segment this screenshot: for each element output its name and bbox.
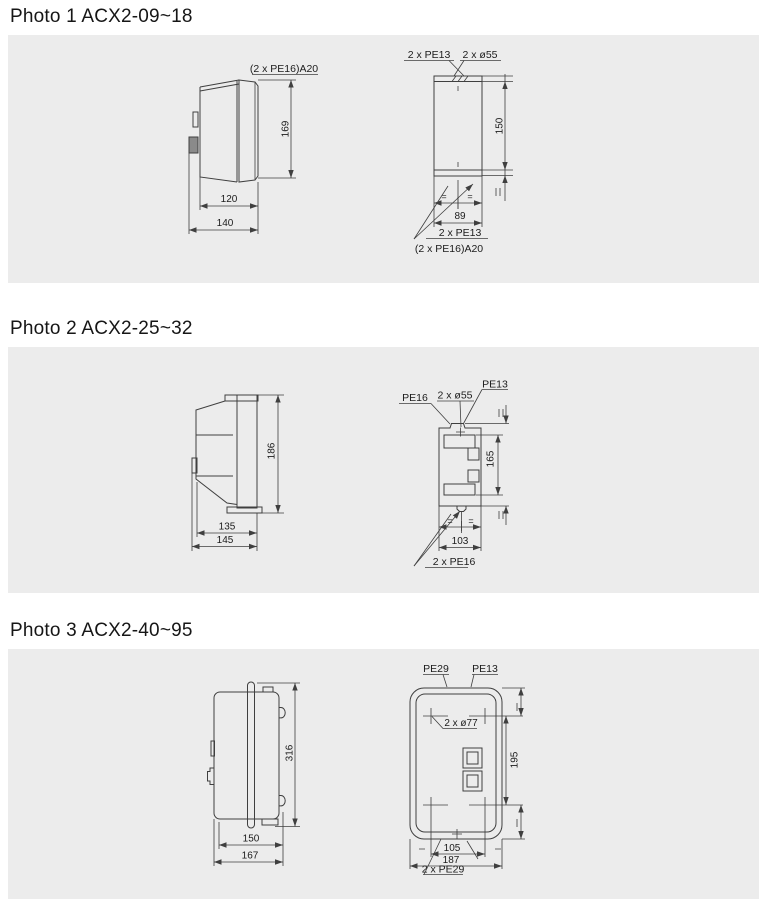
drawing-panel-3: 316 150 167 — [8, 649, 759, 899]
section-title-2: Photo 2 ACX2-25~32 — [10, 318, 767, 340]
side-height-dim-3: 316 — [285, 744, 296, 761]
front-bottom-label-2: 2 x PE16 — [433, 556, 476, 568]
side-depth-outer-dim-2: 145 — [217, 535, 234, 546]
dimension-drawing-acx2-09-18: (2 x PE16)A20 169 120 140 — [8, 35, 759, 283]
front-height-dim-1: 150 — [495, 117, 506, 134]
side-view-geometry-2 — [192, 395, 284, 551]
front-height-dim-2: 165 — [486, 450, 497, 467]
side-depth-outer-dim-1: 140 — [217, 218, 234, 229]
section-photo-1: Photo 1 ACX2-09~18 — [0, 0, 767, 283]
front-top-left-label-2: PE16 — [402, 392, 428, 404]
front-holes-label-3: 2 x ø77 — [444, 718, 478, 729]
section-photo-3: Photo 3 ACX2-40~95 — [0, 593, 767, 899]
dimension-drawing-acx2-25-32: 186 135 145 — [8, 347, 759, 593]
side-view-geometry-1 — [189, 75, 318, 235]
front-height-dim-3: 195 — [510, 751, 521, 768]
section-photo-2: Photo 2 ACX2-25~32 186 — [0, 283, 767, 593]
front-top-left-label-3: PE29 — [423, 663, 449, 675]
side-depth-outer-dim-3: 167 — [242, 851, 259, 862]
front-bottom-label-a-1: 2 x PE13 — [439, 227, 482, 239]
drawing-panel-2: 186 135 145 — [8, 347, 759, 593]
side-height-dim-1: 169 — [281, 120, 292, 137]
dimension-drawing-acx2-40-95: 316 150 167 — [8, 649, 759, 899]
equal-mark-left-1: = — [441, 192, 446, 202]
side-gland-label-1: (2 x PE16)A20 — [250, 63, 318, 75]
section-title-1: Photo 1 ACX2-09~18 — [10, 6, 767, 28]
front-width-inner-dim-3: 105 — [444, 843, 461, 854]
side-depth-inner-dim-2: 135 — [219, 522, 236, 533]
front-view-geometry-3 — [410, 675, 525, 875]
front-bottom-label-3: 2 x PE29 — [422, 864, 465, 876]
side-depth-inner-dim-1: 120 — [221, 194, 238, 205]
front-top-right-label-1: 2 x ø55 — [462, 49, 497, 61]
equal-mark-right-2: = — [468, 516, 473, 526]
drawing-panel-1: (2 x PE16)A20 169 120 140 — [8, 35, 759, 283]
front-top-left-label-1: 2 x PE13 — [408, 49, 451, 61]
equal-mark-left-2: = — [447, 516, 452, 526]
equal-mark-right-1: = — [467, 192, 472, 202]
front-top-mid-label-2: 2 x ø55 — [437, 390, 472, 402]
side-height-dim-2: 186 — [267, 442, 278, 459]
front-bottom-label-b-1: (2 x PE16)A20 — [415, 243, 483, 255]
front-top-right-label-2: PE13 — [482, 379, 508, 391]
front-top-right-label-3: PE13 — [472, 663, 498, 675]
front-width-dim-2: 103 — [452, 536, 469, 547]
front-width-dim-1: 89 — [454, 211, 466, 222]
side-depth-inner-dim-3: 150 — [243, 834, 260, 845]
section-title-3: Photo 3 ACX2-40~95 — [10, 620, 767, 642]
